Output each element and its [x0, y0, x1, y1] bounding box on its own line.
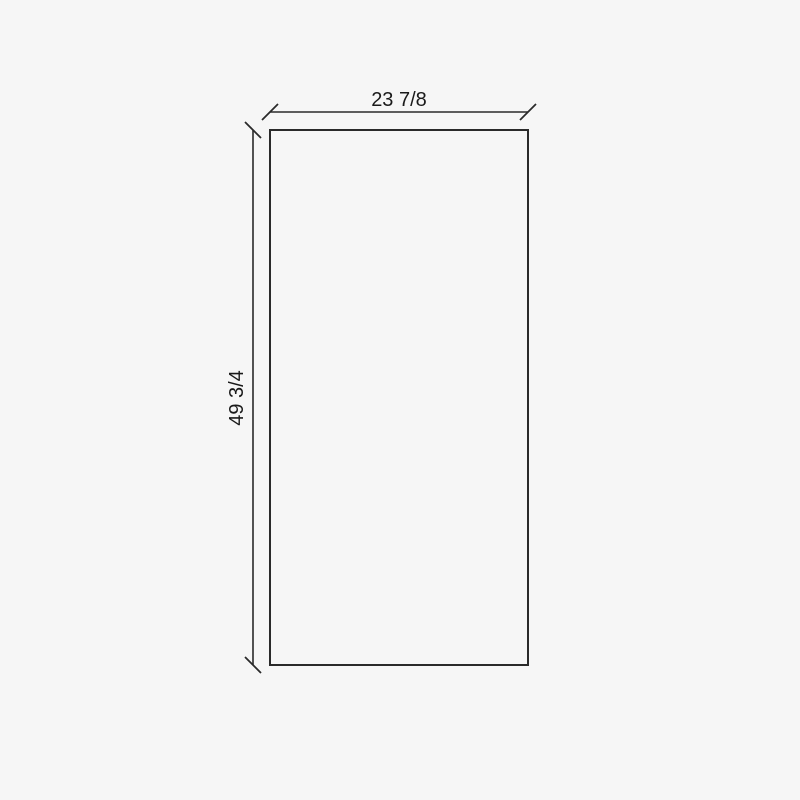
width-dimension: 23 7/8: [262, 89, 536, 120]
panel-dimension-drawing: 23 7/8 49 3/4: [0, 0, 800, 800]
drawing-canvas: 23 7/8 49 3/4: [0, 0, 800, 800]
height-dimension: 49 3/4: [226, 122, 261, 673]
height-dimension-label: 49 3/4: [226, 370, 248, 426]
width-dimension-label: 23 7/8: [371, 89, 427, 111]
panel-outline: [270, 130, 528, 665]
